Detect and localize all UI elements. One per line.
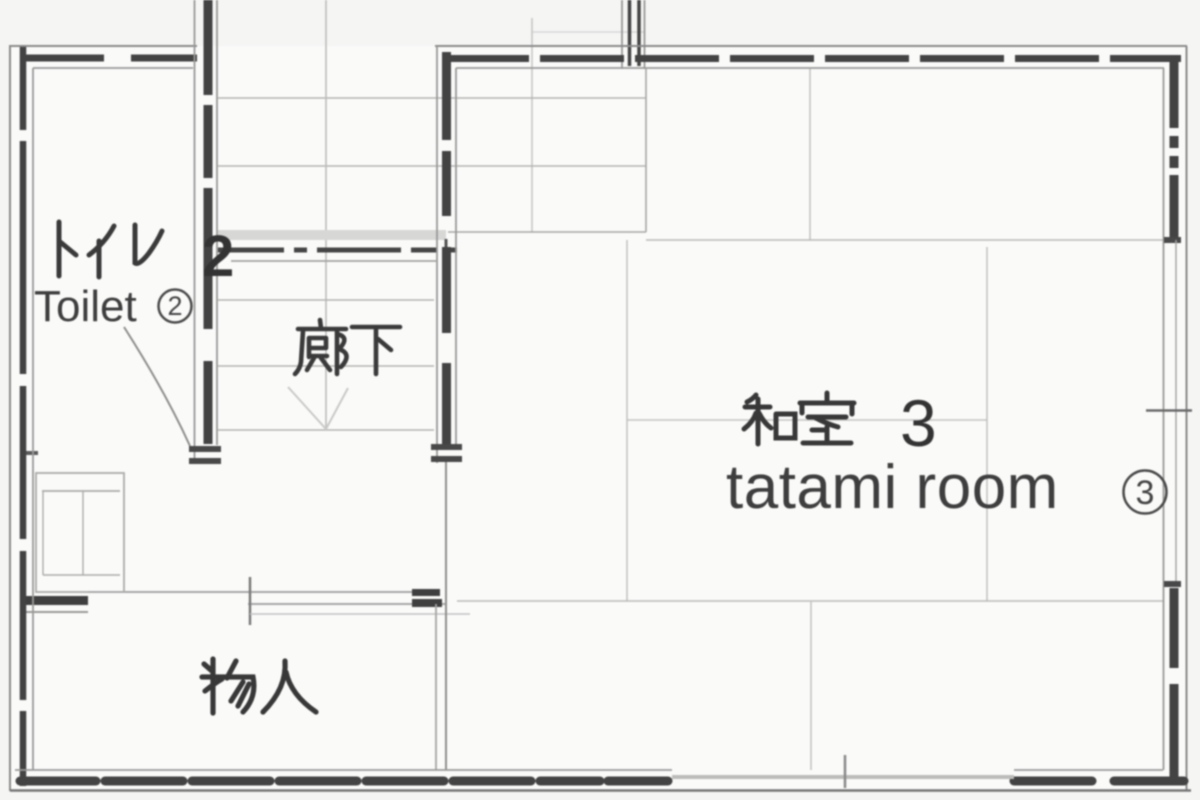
svg-text:3: 3 bbox=[1136, 474, 1155, 512]
svg-text:2: 2 bbox=[167, 291, 182, 321]
svg-text:Toilet: Toilet bbox=[34, 282, 137, 331]
svg-text:3: 3 bbox=[900, 386, 937, 460]
svg-text:2: 2 bbox=[202, 224, 234, 289]
svg-text:tatami room: tatami room bbox=[726, 453, 1059, 522]
